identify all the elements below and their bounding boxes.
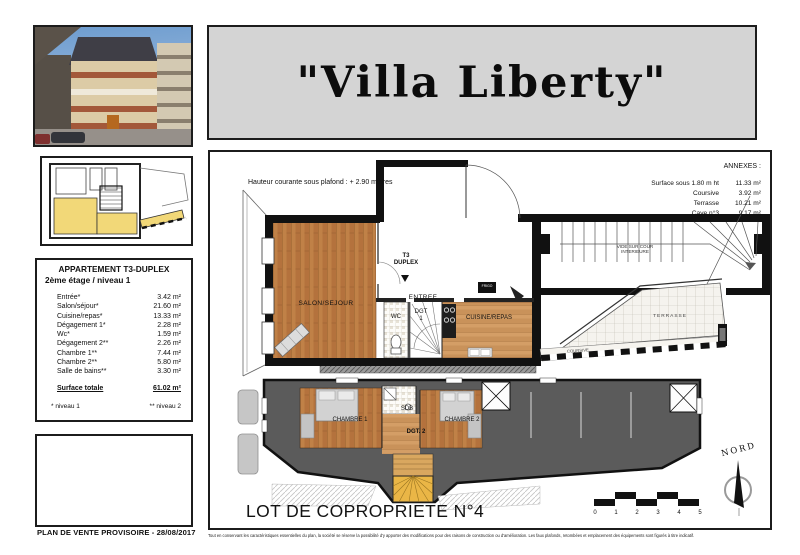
disclaimer-text: Tout en conservant les caractéristiques …	[208, 533, 731, 538]
scale-tick: 3	[654, 510, 662, 516]
plan-caption: PLAN DE VENTE PROVISOIRE - 28/08/2017	[37, 528, 197, 537]
table-row: Entrée*3.42 m²	[57, 293, 181, 302]
terrasse-label: TERRASSE	[640, 314, 700, 320]
title-banner: "Villa Liberty"	[207, 25, 757, 140]
table-row: Chambre 1**7.44 m²	[57, 349, 181, 358]
salon-label: SALON/SEJOUR	[286, 300, 366, 307]
table-row: Salle de bains**3.30 m²	[57, 367, 181, 376]
list-item: Coursive3.92 m²	[561, 189, 761, 199]
entree-label: ENTREE	[395, 294, 451, 301]
chambre2-label: CHAMBRE 2	[432, 417, 492, 424]
empty-frame	[35, 434, 193, 527]
table-row: Salon/séjour*21.60 m²	[57, 302, 181, 311]
frigo-label: FRIGO	[478, 285, 496, 289]
table-row: Chambre 2**5.80 m²	[57, 358, 181, 367]
key-plan-sketch	[40, 156, 193, 246]
cuisine-label: CUISINE/REPAS	[446, 315, 532, 322]
photo-car-red	[35, 134, 50, 144]
duplex-marker: T3 DUPLEX	[387, 253, 425, 267]
scale-tick: 0	[591, 510, 599, 516]
dgt1-label: DGT 1	[408, 309, 434, 323]
north-arrow-icon	[725, 460, 751, 516]
vide-label: VIDE SUR COUR INTERIEURE	[600, 244, 670, 255]
apartment-title: APPARTEMENT T3-DUPLEX	[37, 264, 191, 274]
list-item: Terrasse10.21 m²	[561, 199, 761, 209]
chambre1-label: CHAMBRE 1	[316, 417, 384, 424]
table-row: Wc*1.59 m²	[57, 330, 181, 339]
photo-car-dark	[51, 132, 85, 143]
sdb-label: SDB	[394, 406, 420, 413]
page-title: "Villa Liberty"	[297, 58, 668, 108]
total-value: 61.02 m²	[153, 385, 181, 392]
apartment-info-box: APPARTEMENT T3-DUPLEX 2ème étage / nivea…	[35, 258, 193, 422]
lot-label: LOT DE COPROPRIETE N°4	[246, 501, 484, 521]
room-area-table: Entrée*3.42 m² Salon/séjour*21.60 m² Cui…	[57, 293, 181, 377]
floor-plan-panel: Hauteur courante sous plafond : + 2.90 m…	[208, 150, 772, 530]
list-item: Cave n°39.17 m²	[561, 209, 761, 219]
total-label: Surface totale	[57, 385, 103, 392]
annexes-list: ANNEXES : Surface sous 1.80 m ht11.33 m²…	[561, 163, 761, 219]
key-plan-drawing	[42, 158, 191, 244]
scale-bar	[594, 492, 699, 506]
total-row: Surface totale 61.02 m²	[57, 385, 181, 392]
scale-tick: 1	[612, 510, 620, 516]
wc-label: WC	[384, 314, 408, 321]
footnote-level2: ** niveau 2	[150, 403, 181, 410]
scale-tick: 5	[696, 510, 704, 516]
footnote-level1: * niveau 1	[51, 403, 80, 410]
table-row: Cuisine/repas*13.33 m²	[57, 312, 181, 321]
table-row: Dégagement 2**2.26 m²	[57, 339, 181, 348]
footnotes: * niveau 1 ** niveau 2	[51, 403, 181, 410]
photo-left-building	[35, 55, 71, 137]
photo-balcony	[71, 89, 157, 95]
ceiling-height-note: Hauteur courante sous plafond : + 2.90 m…	[248, 179, 393, 187]
dgt2-label: DGT. 2	[396, 429, 436, 436]
scale-tick: 4	[675, 510, 683, 516]
scale-tick: 2	[633, 510, 641, 516]
apartment-subtitle: 2ème étage / niveau 1	[45, 275, 191, 285]
level2-plan	[238, 378, 702, 510]
photo-right-building	[157, 43, 191, 137]
facade-photo	[33, 25, 193, 147]
list-item: Surface sous 1.80 m ht11.33 m²	[561, 179, 761, 189]
table-row: Dégagement 1*2.28 m²	[57, 321, 181, 330]
plan-sheet: APPARTEMENT T3-DUPLEX 2ème étage / nivea…	[0, 0, 800, 555]
annexes-title: ANNEXES :	[561, 163, 761, 170]
